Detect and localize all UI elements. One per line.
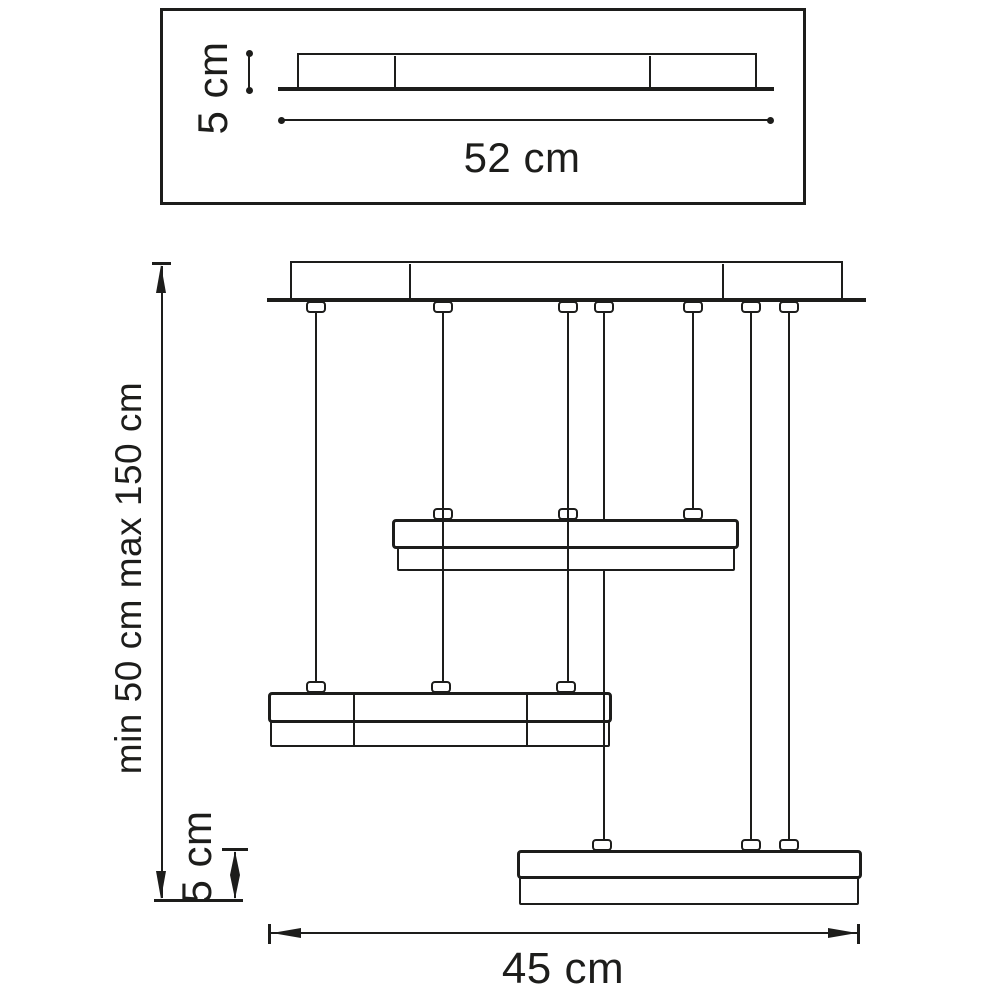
dimension-dot xyxy=(767,117,774,124)
lamp-dimension-diagram: 5 cm 52 cm xyxy=(0,0,1000,1000)
width-dimension-line xyxy=(271,932,858,934)
shade-connector xyxy=(592,839,612,851)
canopy-connector xyxy=(683,301,703,313)
canopy-connector xyxy=(306,301,326,313)
arrow-left-icon xyxy=(272,928,301,938)
dimension-tick xyxy=(268,924,271,944)
left-shade-body xyxy=(268,692,612,723)
arrow-down-icon xyxy=(156,871,166,899)
middle-shade-body xyxy=(392,519,739,549)
top-view-width-dimension-line xyxy=(280,119,771,121)
suspension-wire xyxy=(788,313,790,845)
arrow-up-icon xyxy=(230,851,240,875)
canopy-connector xyxy=(433,301,453,313)
arrow-right-icon xyxy=(828,928,857,938)
dimension-dot xyxy=(246,50,253,57)
top-view-canopy-bar xyxy=(297,53,757,89)
arrow-down-icon xyxy=(230,875,240,899)
canopy-connector xyxy=(558,301,578,313)
dimension-dot xyxy=(246,87,253,94)
suspension-wire xyxy=(603,313,605,521)
canopy-connector xyxy=(594,301,614,313)
left-shade-diffuser xyxy=(270,721,610,747)
canopy-bar-division xyxy=(649,56,651,87)
dimension-tick xyxy=(857,924,860,944)
bottom-shade-diffuser xyxy=(519,877,859,905)
suspension-wire xyxy=(603,569,605,840)
canopy xyxy=(290,261,843,300)
shade-height-label: 5 cm xyxy=(175,797,219,917)
suspension-wire xyxy=(692,313,694,512)
bottom-shade-body xyxy=(517,850,862,879)
left-shade-division xyxy=(526,695,528,745)
suspension-wire xyxy=(750,313,752,845)
shade-connector xyxy=(741,839,761,851)
canopy-bar-division xyxy=(394,56,396,87)
suspension-wire xyxy=(567,313,569,681)
canopy-connector xyxy=(779,301,799,313)
canopy-division xyxy=(722,264,724,298)
suspension-wire xyxy=(315,313,317,681)
canopy-connector xyxy=(741,301,761,313)
shade-connector xyxy=(556,681,576,693)
dimension-dot xyxy=(278,117,285,124)
shade-connector xyxy=(779,839,799,851)
shade-connector xyxy=(306,681,326,693)
top-view-height-dimension-line xyxy=(248,53,250,90)
width-label: 45 cm xyxy=(463,947,663,991)
top-view-width-label: 52 cm xyxy=(422,136,622,180)
shade-connector xyxy=(683,508,703,520)
canopy-division xyxy=(409,264,411,298)
top-view-ceiling-line xyxy=(278,87,774,91)
drop-dimension-line xyxy=(161,266,163,898)
left-shade-division xyxy=(353,695,355,745)
suspension-wire xyxy=(442,313,444,681)
arrow-up-icon xyxy=(156,265,166,293)
drop-range-label: min 50 cm max 150 cm xyxy=(107,378,147,778)
shade-connector xyxy=(431,681,451,693)
top-view-height-label: 5 cm xyxy=(191,28,235,148)
